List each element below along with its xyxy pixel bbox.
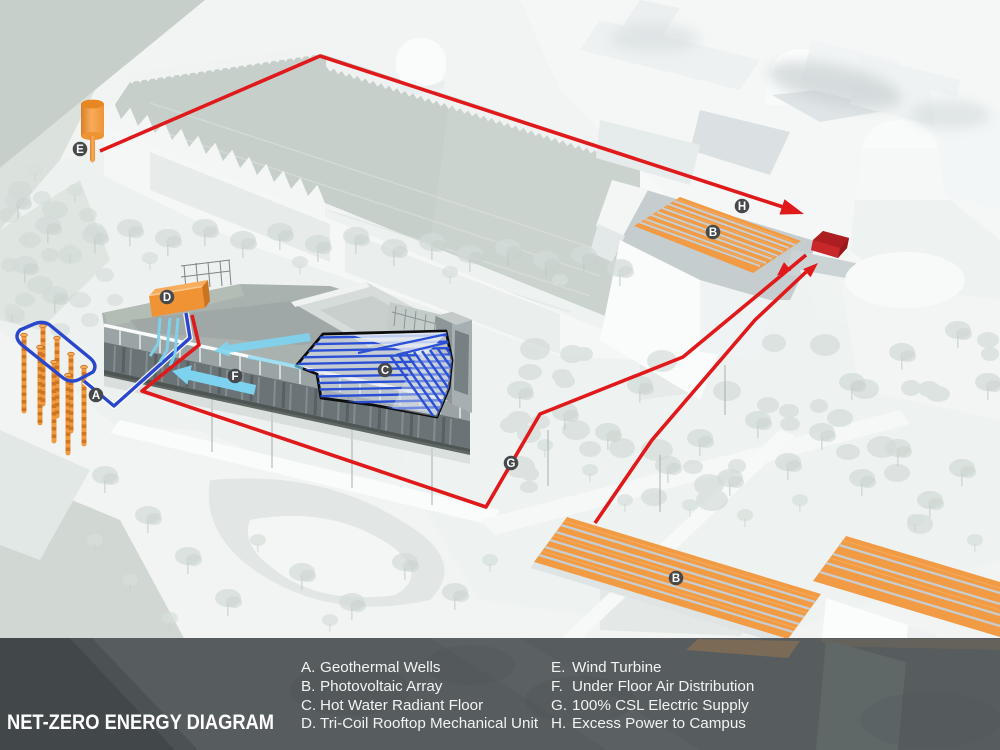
svg-text:E.: E. [551,659,565,676]
svg-text:Photovoltaic Array: Photovoltaic Array [320,678,443,695]
svg-text:D: D [163,292,171,304]
svg-text:B: B [709,227,717,239]
svg-text:A.: A. [301,659,315,676]
svg-text:C.: C. [301,697,316,714]
svg-text:Wind Turbine: Wind Turbine [572,659,661,676]
svg-text:Hot Water Radiant Floor: Hot Water Radiant Floor [320,697,483,714]
svg-text:Excess Power to Campus: Excess Power to Campus [572,715,746,732]
svg-text:D.: D. [301,715,316,732]
svg-text:H.: H. [551,715,566,732]
svg-text:A: A [92,390,100,402]
svg-text:Geothermal Wells: Geothermal Wells [320,659,441,676]
svg-text:Under Floor Air Distribution: Under Floor Air Distribution [572,678,754,695]
svg-text:E: E [76,144,84,156]
svg-text:B.: B. [301,678,315,695]
svg-text:H: H [738,201,746,213]
svg-text:B: B [672,573,680,585]
svg-text:Tri-Coil Rooftop Mechanical Un: Tri-Coil Rooftop Mechanical Unit [320,715,539,732]
svg-text:F: F [231,371,238,383]
svg-text:G.: G. [551,697,567,714]
svg-text:100% CSL Electric Supply: 100% CSL Electric Supply [572,697,749,714]
svg-text:F.: F. [551,678,563,695]
svg-text:C: C [381,365,389,377]
svg-text:G: G [507,458,516,470]
svg-text:NET-ZERO ENERGY DIAGRAM: NET-ZERO ENERGY DIAGRAM [7,710,274,734]
